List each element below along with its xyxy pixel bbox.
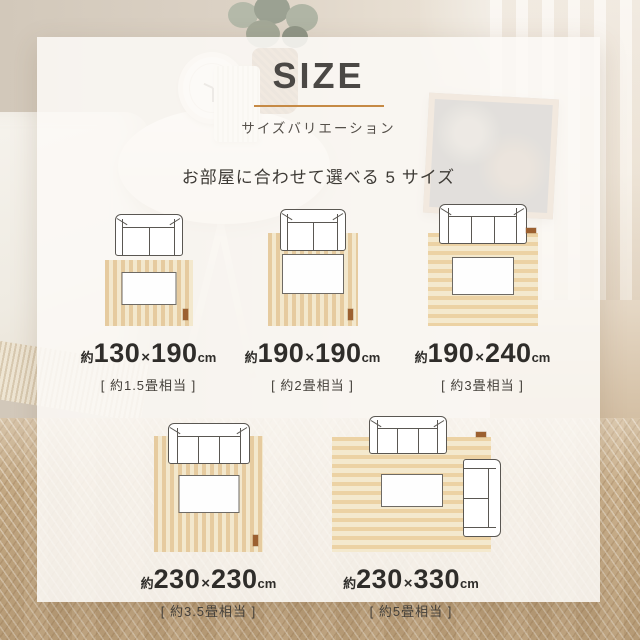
sofa-top-view xyxy=(439,204,527,244)
rug-diagram xyxy=(154,423,263,552)
rug-tag xyxy=(183,309,188,320)
rug-diagram xyxy=(428,204,538,326)
rug-tag xyxy=(476,432,486,437)
sofa-top-view xyxy=(369,416,447,454)
sofa-top-view xyxy=(115,214,183,256)
size-label: 約190×190cm xyxy=(245,339,381,372)
size-label: 約130×190cm xyxy=(81,339,217,372)
page-title: SIZE xyxy=(37,55,600,97)
size-row-bottom: 約230×230cm [ 約3.5畳相当 ] xyxy=(37,416,600,620)
size-option-130x190: 約130×190cm [ 約1.5畳相当 ] xyxy=(93,214,205,394)
tatami-equivalent: [ 約3.5畳相当 ] xyxy=(161,601,257,620)
size-info-card: SIZE サイズバリエーション お部屋に合わせて選べる 5 サイズ xyxy=(37,37,600,602)
sofa-top-view xyxy=(280,209,346,251)
size-option-190x190: 約190×190cm [ 約2畳相当 ] xyxy=(257,209,369,394)
product-size-infographic: SIZE サイズバリエーション お部屋に合わせて選べる 5 サイズ xyxy=(0,0,640,640)
low-table xyxy=(452,257,514,295)
low-table xyxy=(178,475,239,513)
low-table xyxy=(121,272,176,305)
title-underline xyxy=(254,105,384,107)
rug-tag xyxy=(253,535,258,546)
rug-tag xyxy=(348,309,353,320)
size-option-230x230: 約230×230cm [ 約3.5畳相当 ] xyxy=(134,423,284,620)
sofa-top-view xyxy=(168,423,250,464)
tagline: お部屋に合わせて選べる 5 サイズ xyxy=(37,163,600,188)
tatami-equivalent: [ 約2畳相当 ] xyxy=(271,375,354,394)
rug-tag xyxy=(526,228,536,233)
rug-diagram xyxy=(105,214,193,326)
tatami-equivalent: [ 約1.5畳相当 ] xyxy=(101,375,197,394)
low-table xyxy=(282,254,344,294)
rug-diagram xyxy=(332,416,504,552)
size-label: 約230×330cm xyxy=(332,565,491,598)
size-option-190x240: 約190×240cm [ 約3畳相当 ] xyxy=(421,204,545,394)
size-label: 約190×240cm xyxy=(415,339,551,372)
low-table xyxy=(381,474,443,507)
size-row-top: 約130×190cm [ 約1.5畳相当 ] 約190×190cm xyxy=(37,204,600,394)
size-label: 約230×230cm xyxy=(141,565,277,598)
side-sofa-top-view xyxy=(463,459,501,537)
rug-diagram xyxy=(268,209,358,326)
size-option-230x330: 約230×330cm [ 約5畳相当 ] xyxy=(332,416,504,620)
page-subtitle: サイズバリエーション xyxy=(37,117,600,137)
card-header: SIZE サイズバリエーション お部屋に合わせて選べる 5 サイズ xyxy=(37,37,600,188)
tatami-equivalent: [ 約3畳相当 ] xyxy=(441,375,524,394)
rug-top-view xyxy=(105,260,193,326)
rug-top-view xyxy=(428,233,538,326)
tatami-equivalent: [ 約5畳相当 ] xyxy=(332,601,491,620)
